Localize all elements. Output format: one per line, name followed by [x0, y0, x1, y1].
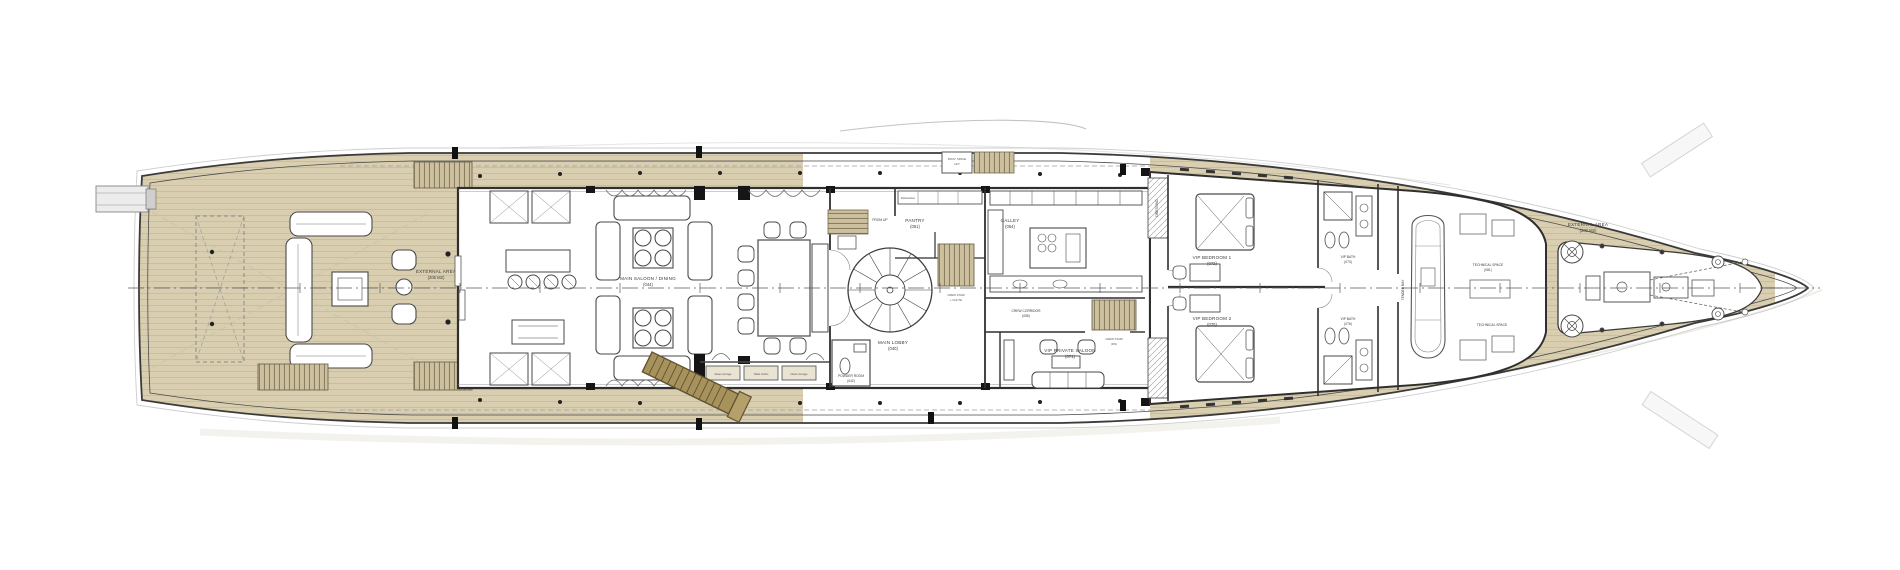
vip-saloon-tv — [1004, 340, 1014, 380]
powder-room-num: (042) — [847, 379, 855, 383]
vip-bath-1-label: VIP BATH — [1341, 255, 1356, 259]
tender-bay-label: TENDER BAY — [1401, 279, 1405, 301]
aft-side-table — [396, 279, 412, 295]
dishwasher-label: Dishwasher — [901, 196, 916, 200]
deck-plan-canvas: EXTERNAL AREA (206 M2) — [0, 0, 1900, 570]
main-saloon-num: (044) — [643, 282, 653, 287]
dressing-label: DRESSING — [1155, 199, 1159, 217]
saloon-tv-console — [512, 320, 564, 344]
sink-icon — [854, 344, 866, 352]
main-lobby-num: (040) — [888, 346, 898, 351]
vanity-sink-1 — [1356, 196, 1372, 236]
aft-armchair-2 — [392, 304, 416, 324]
vip-saloon-label: VIP PRIVATE SALOON — [1044, 348, 1096, 353]
aft-external-area-label: EXTERNAL AREA — [416, 269, 457, 274]
vip-bed-1 — [1196, 194, 1254, 250]
bidet-icon — [1339, 328, 1349, 344]
vip-saloon-num: (071) — [1065, 354, 1075, 359]
from-up-label: FROM UP — [872, 218, 888, 222]
main-lobby-label: MAIN LOBBY — [878, 340, 908, 345]
provisions-lift-label2: LIFT — [954, 162, 960, 166]
galley-label: GALLEY — [1000, 218, 1019, 223]
galley-counter-top — [990, 191, 1142, 205]
vanity-1 — [1190, 264, 1220, 281]
storage-label-3: Glass storage — [790, 372, 808, 376]
vip-bath-1-num: (073) — [1344, 260, 1352, 264]
main-saloon-label: MAIN SALOON / DINING — [620, 276, 676, 281]
crew-stair-down-label: CREW STAIR — [1105, 337, 1122, 341]
vanity-sink-2 — [1356, 340, 1372, 380]
vip-bedroom-2-num: (075) — [1207, 322, 1217, 327]
hawse-pipe — [1742, 259, 1748, 265]
spiral-staircase — [848, 248, 932, 332]
pantry-num: (051) — [910, 224, 920, 229]
vanity-2 — [1190, 295, 1220, 312]
vanity-chair-2 — [1173, 297, 1186, 310]
stern-passerelle — [96, 186, 156, 212]
fore-external-area-num: (200 M2) — [1580, 228, 1597, 233]
fore-external-area-label: EXTERNAL AREA — [1568, 222, 1609, 227]
vip-bath-2-num: (076) — [1344, 322, 1352, 326]
provisions-lift: PROV. SPACE LIFT — [942, 152, 1014, 173]
crew-corridor-num: (055) — [1022, 314, 1030, 318]
vip-bedroom-1-label: VIP BEDROOM 1 — [1193, 255, 1232, 260]
storage-label-2: Table cloths — [754, 372, 769, 376]
vip-bed-2 — [1196, 326, 1254, 382]
aft-coffee-table — [332, 272, 368, 306]
bidet-icon — [1339, 232, 1349, 248]
hawse-pipe — [1742, 309, 1748, 315]
vip-bedroom-1-num: (072) — [1207, 261, 1217, 266]
technical-space-1-num: (081) — [1484, 268, 1492, 272]
toilet-icon — [1325, 232, 1335, 248]
deck-plan-svg: EXTERNAL AREA (206 M2) — [0, 0, 1900, 570]
technical-space-2-label: TECHNICAL SPACE — [1477, 323, 1508, 327]
powder-room-label: POWDER ROOM — [838, 374, 864, 378]
toilet-icon — [840, 358, 850, 374]
crew-stair-down-label2: (DN) — [1111, 342, 1117, 346]
aft-external-area-num: (206 M2) — [428, 275, 445, 280]
side-deck-teak-bottom — [458, 388, 803, 426]
side-deck-teak-top — [458, 150, 803, 188]
provisions-stair — [974, 152, 1014, 173]
aft-armchair-1 — [392, 250, 416, 270]
aft-stairs-port-1 — [258, 364, 328, 390]
vip-bath-2-label: VIP BATH — [1341, 317, 1356, 321]
powder-room: POWDER ROOM (042) — [832, 340, 870, 386]
galley-num: (054) — [1005, 224, 1015, 229]
crew-stair-chute-label2: + CHUTE — [950, 298, 962, 302]
dumbwaiter — [838, 236, 856, 249]
crew-corridor-label: CREW CORRIDOR — [1012, 309, 1042, 313]
crew-stair-chute-label: CREW STAIR — [947, 293, 964, 297]
toilet-icon — [1325, 328, 1335, 344]
vip-bedroom-2-label: VIP BEDROOM 2 — [1193, 316, 1232, 321]
provisions-lift-label: PROV. SPACE — [948, 157, 967, 161]
vanity-chair-1 — [1173, 266, 1186, 279]
pantry-label: PANTRY — [905, 218, 924, 223]
technical-space-1-label: TECHNICAL SPACE — [1473, 263, 1504, 267]
storage-label-1: Glass storage — [714, 372, 732, 376]
stair-from-up — [828, 210, 868, 234]
aft-stairs-stbd — [414, 162, 472, 188]
